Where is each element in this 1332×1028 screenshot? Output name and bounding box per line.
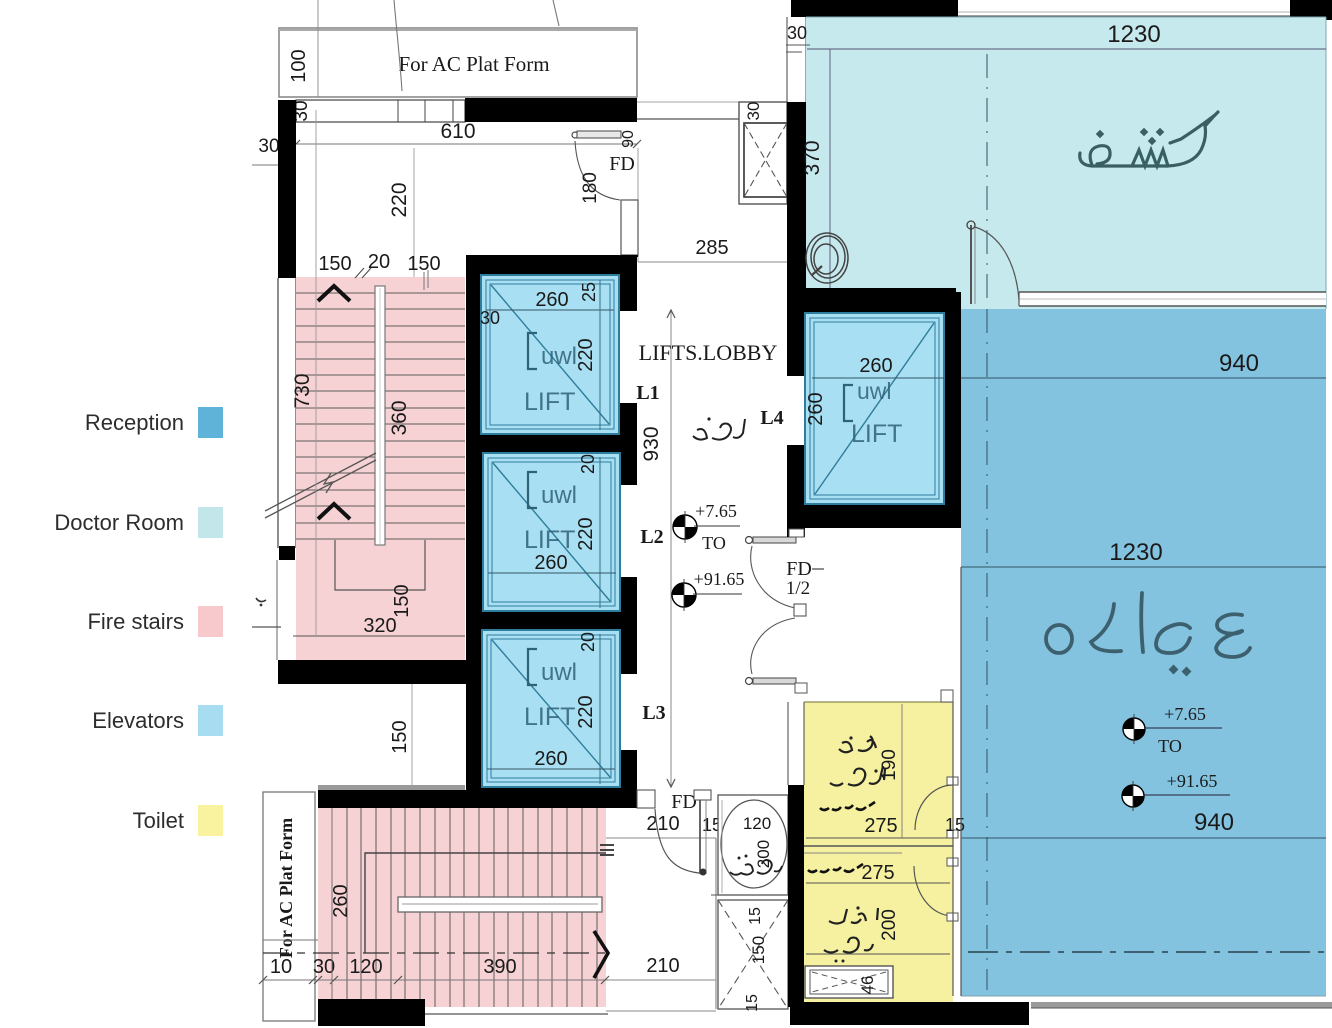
svg-text:220: 220	[575, 517, 597, 550]
svg-text:uwl: uwl	[541, 659, 577, 686]
svg-text:360: 360	[388, 400, 411, 435]
svg-text:20: 20	[578, 632, 598, 652]
svg-text:Fire stairs: Fire stairs	[87, 609, 184, 634]
svg-text:150: 150	[391, 584, 413, 617]
svg-text:210: 210	[646, 813, 679, 835]
svg-text:610: 610	[440, 120, 475, 143]
svg-text:285: 285	[695, 237, 728, 259]
svg-text:1230: 1230	[1107, 21, 1160, 48]
svg-text:uwl: uwl	[541, 482, 577, 509]
svg-text:150: 150	[749, 936, 768, 964]
svg-text:150: 150	[389, 720, 411, 753]
svg-text:FD: FD	[671, 791, 697, 813]
svg-text:275: 275	[864, 815, 897, 837]
svg-text:30: 30	[744, 102, 763, 121]
svg-text:TO: TO	[702, 533, 726, 553]
svg-text:FD: FD	[786, 558, 812, 580]
svg-text:L3: L3	[642, 702, 665, 724]
svg-text:200: 200	[754, 840, 773, 868]
svg-text:260: 260	[534, 552, 567, 574]
svg-text:LIFT: LIFT	[851, 420, 902, 448]
svg-text:320: 320	[363, 615, 396, 637]
svg-text:15: 15	[744, 994, 761, 1012]
svg-text:FD: FD	[609, 153, 635, 175]
svg-text:120: 120	[349, 956, 382, 978]
svg-text:+91.65: +91.65	[1167, 771, 1218, 791]
svg-text:46: 46	[858, 976, 877, 995]
svg-text:200: 200	[879, 909, 900, 941]
svg-text:10: 10	[270, 956, 292, 978]
svg-text:90: 90	[620, 130, 637, 148]
svg-text:uwl: uwl	[857, 378, 892, 404]
svg-text:180: 180	[580, 172, 601, 204]
svg-text:L1: L1	[636, 382, 659, 404]
svg-text:1/2: 1/2	[786, 578, 810, 599]
svg-text:190: 190	[879, 749, 900, 781]
svg-text:For AC Plat Form: For AC Plat Form	[276, 818, 296, 958]
svg-text:220: 220	[575, 695, 597, 728]
svg-text:390: 390	[483, 956, 516, 978]
svg-text:Elevators: Elevators	[92, 708, 184, 733]
svg-text:uwl: uwl	[541, 343, 577, 370]
svg-text:940: 940	[1194, 809, 1234, 836]
svg-text:220: 220	[575, 338, 597, 371]
svg-text:260: 260	[330, 884, 352, 917]
svg-text:275: 275	[861, 862, 894, 884]
svg-text:LIFTS.LOBBY: LIFTS.LOBBY	[639, 340, 778, 365]
svg-text:+7.65: +7.65	[695, 501, 737, 521]
svg-text:+7.65: +7.65	[1164, 704, 1206, 724]
svg-text:260: 260	[805, 392, 827, 425]
svg-text:930: 930	[640, 426, 663, 461]
svg-text:100: 100	[288, 49, 310, 82]
svg-text:370: 370	[801, 140, 824, 175]
svg-text:260: 260	[859, 355, 892, 377]
svg-text:120: 120	[743, 814, 771, 833]
svg-text:L4: L4	[760, 407, 783, 429]
svg-text:25: 25	[579, 282, 599, 302]
svg-text:260: 260	[535, 289, 568, 311]
svg-text:30: 30	[480, 308, 500, 328]
svg-text:940: 940	[1219, 350, 1259, 377]
svg-text:260: 260	[534, 748, 567, 770]
svg-text:150: 150	[318, 253, 351, 275]
svg-text:Doctor Room: Doctor Room	[54, 510, 184, 535]
svg-text:20: 20	[578, 454, 598, 474]
svg-text:L2: L2	[640, 526, 663, 548]
svg-text:30: 30	[787, 23, 807, 43]
svg-text:Reception: Reception	[85, 410, 184, 435]
svg-text:30: 30	[258, 136, 279, 157]
svg-text:LIFT: LIFT	[524, 388, 575, 416]
svg-text:For AC Plat Form: For AC Plat Form	[398, 52, 549, 76]
svg-text:15: 15	[945, 815, 965, 835]
svg-text:Toilet: Toilet	[133, 808, 184, 833]
svg-text:220: 220	[388, 182, 411, 217]
svg-text:+91.65: +91.65	[694, 569, 745, 589]
svg-text:TO: TO	[1158, 736, 1182, 756]
svg-text:LIFT: LIFT	[524, 703, 575, 731]
svg-text:LIFT: LIFT	[524, 526, 575, 554]
svg-text:730: 730	[291, 373, 314, 408]
svg-text:1230: 1230	[1109, 539, 1162, 566]
svg-text:150: 150	[407, 253, 440, 275]
svg-text:20: 20	[368, 251, 390, 273]
svg-text:210: 210	[646, 955, 679, 977]
svg-text:15: 15	[747, 907, 764, 925]
